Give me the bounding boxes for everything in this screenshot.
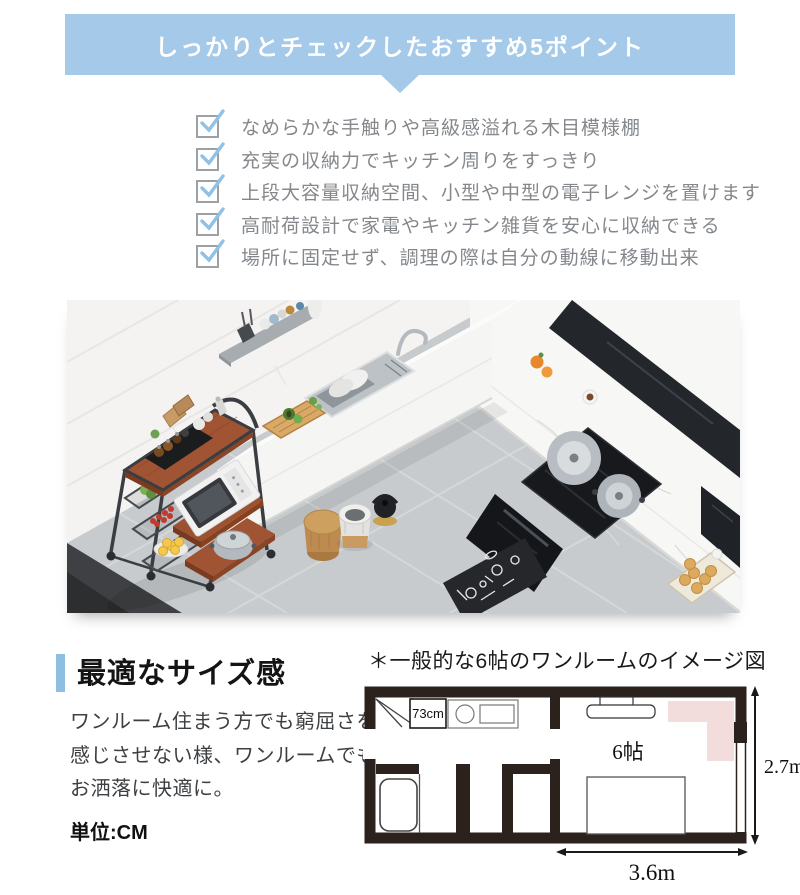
plan-bed <box>587 777 685 834</box>
size-body-line: お洒落に快適に。 <box>70 778 234 800</box>
floor-plan-caption: ＊一般的な6帖のワンルームのイメージ図 <box>368 645 766 675</box>
heading-accent-bar <box>56 654 65 692</box>
room-size-label: 6帖 <box>612 740 644 764</box>
kitchen-scene-image <box>67 300 740 613</box>
checkbox-checked-icon <box>196 245 219 268</box>
checklist-item-label: 場所に固定せず、調理の際は自分の動線に移動出来 <box>241 243 700 270</box>
checklist-item: 充実の収納力でキッチン周りをすっきり <box>196 149 761 170</box>
coffee-cup <box>583 390 597 404</box>
banner-title: しっかりとチェックしたおすすめ5ポイント <box>155 28 645 62</box>
checklist-item: 場所に固定せず、調理の際は自分の動線に移動出来 <box>196 246 761 267</box>
size-section-heading: 最適なサイズ感 <box>77 650 286 692</box>
checklist-item: 上段大容量収納空間、小型や中型の電子レンジを置けます <box>196 181 761 202</box>
floor-plan-figure: 73cm 6帖 2.7m <box>360 684 800 894</box>
checklist-item-label: 充実の収納力でキッチン周りをすっきり <box>241 146 600 173</box>
width-dimension-label: 3.6m <box>629 860 676 885</box>
checkbox-checked-icon <box>196 148 219 171</box>
checklist-item: なめらかな手触りや高級感溢れる木目模様棚 <box>196 116 761 137</box>
bucket <box>337 504 373 551</box>
checklist-item-label: 上段大容量収納空間、小型や中型の電子レンジを置けます <box>241 178 761 205</box>
kitchen-photo <box>67 300 740 613</box>
size-section-body: ワンルーム住まう方でも窮屈さを 感じさせない様、ワンルームでも お洒落に快適に。 <box>70 706 377 807</box>
height-dimension-label: 2.7m <box>764 756 800 778</box>
stool <box>304 510 342 561</box>
checkbox-checked-icon <box>196 213 219 236</box>
unit-label: 単位:CM <box>70 816 148 845</box>
checklist-item-label: 高耐荷設計で家電やキッチン雑貨を安心に収納できる <box>241 211 721 238</box>
plan-kitchen-counter <box>448 700 518 728</box>
product-description-page: しっかりとチェックしたおすすめ5ポイント なめらかな手触りや高級感溢れる木目模様… <box>0 0 800 895</box>
plan-bathtub <box>380 779 417 831</box>
plan-left-window <box>363 729 376 759</box>
size-body-line: 感じさせない様、ワンルームでも <box>70 745 377 767</box>
checklist: なめらかな手触りや高級感溢れる木目模様棚 充実の収納力でキッチン周りをすっきり … <box>196 116 761 279</box>
header-banner: しっかりとチェックしたおすすめ5ポイント <box>65 14 735 75</box>
checklist-item-label: なめらかな手触りや高級感溢れる木目模様棚 <box>241 113 641 140</box>
caster-wheel <box>107 552 116 561</box>
black-pot <box>373 496 397 527</box>
checklist-item: 高耐荷設計で家電やキッチン雑貨を安心に収納できる <box>196 214 761 235</box>
checkbox-checked-icon <box>196 180 219 203</box>
checkbox-checked-icon <box>196 115 219 138</box>
rack-width-label: 73cm <box>412 706 444 721</box>
size-body-line: ワンルーム住まう方でも窮屈さを <box>70 711 377 733</box>
banner-pointer-triangle <box>381 75 419 93</box>
